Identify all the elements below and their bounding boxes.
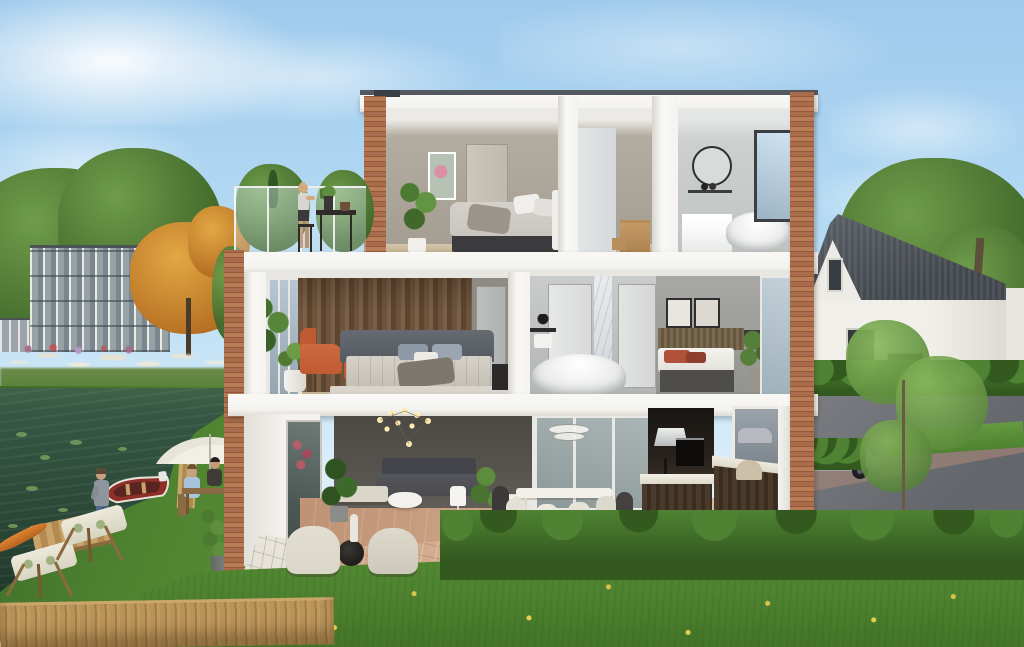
- pendant-lamp: [553, 432, 585, 441]
- potted-plant: [396, 176, 442, 242]
- lily-pad: [70, 440, 82, 445]
- flower-reflection: [290, 434, 314, 478]
- freestanding-bathtub: [532, 354, 626, 398]
- cloud: [500, 0, 900, 90]
- deck-chair: [54, 504, 142, 566]
- kitchen-faucet: [664, 458, 667, 475]
- side-table: [338, 540, 364, 566]
- garden-hedge: [440, 510, 1024, 580]
- architectural-render-scene: [0, 0, 1024, 647]
- floor-vase: [350, 514, 358, 542]
- rust-pillow: [686, 352, 706, 363]
- round-mirror: [692, 146, 732, 186]
- chair-leg: [314, 374, 316, 392]
- bar-stool: [298, 224, 314, 255]
- floor-slab: [228, 252, 818, 274]
- floor-slab: [228, 394, 818, 416]
- stool: [736, 460, 762, 480]
- cardboard-box: [612, 238, 626, 250]
- plant-pot: [324, 196, 333, 210]
- framed-print: [666, 298, 692, 328]
- vanity-unit: [682, 214, 732, 252]
- bathroom-shelf: [688, 190, 732, 193]
- wooden-fence: [0, 597, 334, 647]
- deck-chair-cushion: [60, 504, 129, 547]
- plant-pot: [340, 202, 350, 211]
- towel: [534, 334, 552, 348]
- lily-pad: [8, 524, 18, 528]
- slat-headboard: [658, 328, 744, 350]
- outdoor-armchair: [368, 528, 418, 574]
- hallway-wall: [578, 128, 616, 252]
- table-lamp: [450, 486, 466, 506]
- table-leg: [350, 215, 352, 251]
- potted-plant: [318, 454, 362, 514]
- lily-pad: [40, 455, 50, 460]
- structural-column: [244, 272, 266, 396]
- bathroom-window: [754, 130, 794, 222]
- lily-pad: [118, 447, 127, 451]
- kitchen-island-countertop: [640, 474, 714, 484]
- structural-column: [508, 272, 530, 396]
- toiletries: [700, 182, 718, 190]
- coffee-table: [388, 492, 422, 508]
- built-in-oven: [676, 438, 704, 466]
- structural-column: [652, 96, 678, 252]
- orange-armchair: [300, 344, 342, 374]
- plant-pot: [330, 506, 348, 522]
- framed-print: [694, 298, 720, 328]
- attic-window: [827, 258, 843, 292]
- table-leg: [320, 215, 322, 251]
- young-tree-canopy: [860, 420, 932, 492]
- dining-table: [516, 488, 612, 498]
- cloud: [830, 85, 1024, 165]
- outdoor-armchair: [286, 526, 340, 574]
- lily-pad: [26, 486, 38, 491]
- single-bed-base: [660, 370, 734, 392]
- lily-pad: [16, 432, 27, 437]
- car-through-window: [738, 428, 772, 443]
- flower-border: [14, 342, 154, 356]
- structural-column: [558, 96, 578, 252]
- plant-pot: [408, 238, 426, 252]
- bedroom-window: [760, 276, 794, 398]
